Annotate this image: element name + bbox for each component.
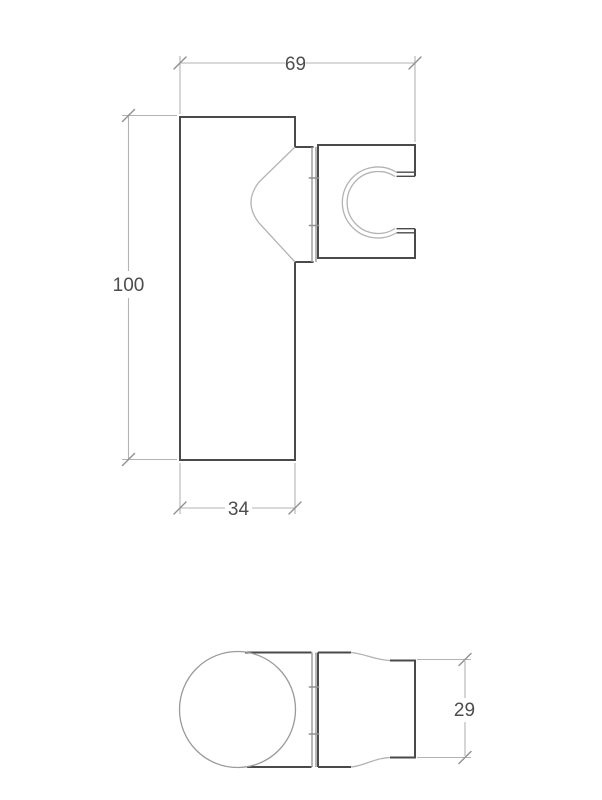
dim-height-label: 100	[113, 275, 145, 296]
dimension-labels: 69 100 34 29	[113, 54, 475, 721]
front-neck-lines	[312, 147, 316, 262]
clip-arc-outer	[342, 167, 396, 238]
dim-plate-width-label: 34	[228, 499, 250, 520]
holder-body-outline	[318, 145, 415, 258]
plan-neck-lines	[312, 653, 316, 768]
dim-depth-label: 29	[454, 700, 475, 721]
clip-slot-bottom	[397, 229, 416, 233]
front-view-outlines	[180, 117, 415, 460]
swivel-cone-profile	[251, 147, 295, 262]
holder-waist-curves	[351, 653, 390, 768]
holder-waist-bottom	[351, 758, 390, 768]
clip-arc-inner	[347, 172, 395, 234]
dim-width-label: 69	[285, 54, 306, 75]
plan-view-thin-edges	[180, 652, 296, 768]
dimension-tick-slashes	[123, 57, 472, 764]
wall-plate-circle	[180, 652, 296, 768]
front-view	[180, 117, 415, 460]
clip-slot-top	[397, 172, 416, 176]
dimensions: 69 100 34 29	[113, 54, 475, 764]
plan-view	[180, 652, 416, 768]
wall-plate-profile-outline	[180, 117, 295, 460]
technical-drawing: 69 100 34 29	[0, 0, 602, 800]
front-view-thin-edges	[251, 147, 396, 262]
plan-view-outlines	[245, 653, 415, 768]
holder-right-outline	[390, 661, 415, 758]
drawing-canvas: 69 100 34 29	[0, 0, 602, 800]
clip-slot-lines	[397, 172, 416, 233]
holder-waist-top	[351, 653, 390, 661]
